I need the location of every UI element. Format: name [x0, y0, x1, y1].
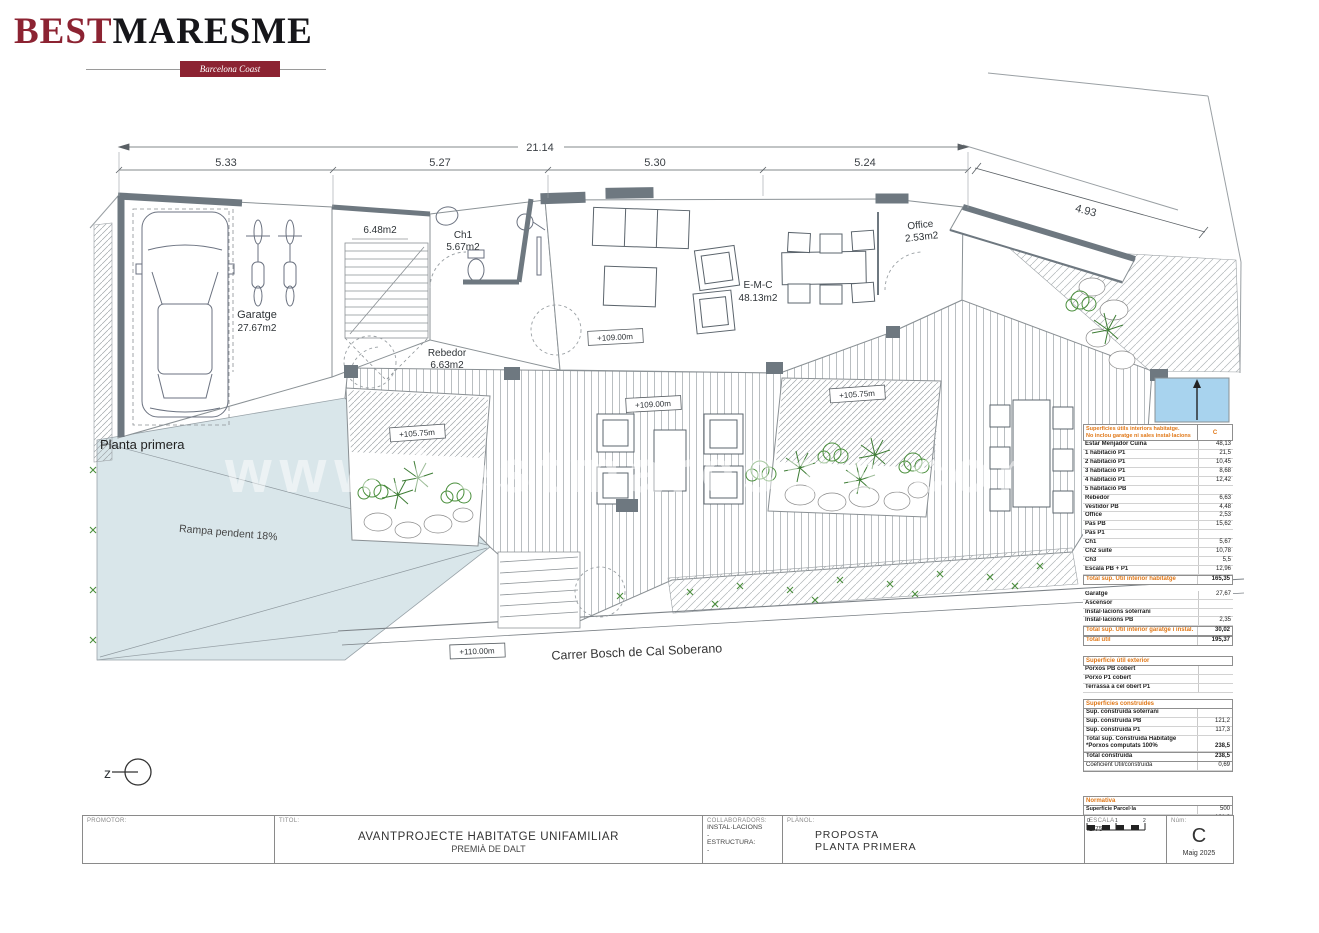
north-letter: z [104, 765, 111, 781]
row-label: Porxo P1 cobert [1083, 675, 1199, 683]
dim-label: 5.30 [644, 157, 665, 169]
dim-label: 5.27 [429, 157, 450, 169]
total-built-row: Total construida 238,5 [1084, 752, 1232, 762]
row-label: Total sup. Construida Habitatge [1086, 736, 1195, 744]
row-label: Pas P1 [1083, 530, 1199, 538]
row-value: 500 [1198, 806, 1232, 814]
row-value: 6,63 [1199, 495, 1233, 503]
exterior-rows: Porxos PB cobert Porxo P1 cobert Terrass… [1083, 666, 1233, 693]
titol-cell: TITOL: AVANTPROJECTE HABITATGE UNIFAMILI… [275, 816, 703, 863]
built-section: Sup. construida soterrani Sup. construid… [1083, 709, 1233, 772]
garage-label: Garatge [237, 309, 277, 321]
row-value: 2,35 [1199, 617, 1233, 625]
dim-label: 5.33 [215, 157, 236, 169]
exterior-section-header: Superficie útil exterior [1083, 656, 1233, 666]
coef-row: Coeficient Útil/construida 0,69 [1084, 762, 1232, 771]
row-label: Escala PB + P1 [1083, 566, 1199, 574]
garage-area: 27.67m2 [238, 323, 277, 334]
dim-total-label: 21.14 [526, 142, 554, 154]
row-value: 30,02 [1198, 627, 1232, 635]
table-row: Terrassa a cel obert P1 [1083, 684, 1233, 693]
row-label: Total construida [1084, 753, 1198, 761]
row-value: 238,5 [1198, 753, 1232, 761]
project-location: PREMIÀ DE DALT [279, 844, 698, 854]
collab-item: ESTRUCTURA: [707, 839, 778, 847]
row-value: 10,78 [1199, 548, 1233, 556]
num-cell: Núm: C Maig 2025 [1167, 816, 1231, 863]
row-label: Ascensor [1083, 600, 1199, 608]
table-row: Instal·lacions PB 2,35 [1083, 617, 1233, 626]
total-garage-row: Total sup. Útil interior garatge i insta… [1083, 626, 1233, 636]
row-label: 5 habitació PB [1083, 486, 1199, 494]
titol-label: TITOL: [279, 818, 698, 824]
project-title: AVANTPROJECTE HABITATGE UNIFAMILIAR [279, 831, 698, 843]
row-label: 3 habitació P1 [1083, 468, 1199, 476]
best-maresme-logo: BESTMARESME Barcelona Coast Properties [14, 12, 324, 82]
header-line2: No inclou garatge ni sales instal·lacion… [1086, 433, 1195, 440]
floor-title: Planta primera [100, 437, 185, 452]
ch1-area: 5.67m2 [446, 242, 480, 253]
row-value [1199, 486, 1233, 494]
level-deck: +109.00m [635, 399, 672, 410]
row-label: Total sup. Útil interior habitatge [1084, 576, 1198, 584]
row-label: Pas PB [1083, 521, 1199, 529]
normativa-section-header: Normativa [1083, 796, 1233, 806]
interior-rows: Estar Menjador Cuina 48,13 1 habitació P… [1083, 441, 1233, 575]
table-row: Pas P1 [1083, 530, 1233, 539]
row-label: 2 habitació P1 [1083, 459, 1199, 467]
row-label: Estar Menjador Cuina [1083, 441, 1199, 449]
row-label: Total sup. Útil interior garatge i insta… [1084, 627, 1198, 635]
garden-stairs [498, 552, 580, 628]
built-section-header: Superficies construides [1083, 699, 1233, 709]
emc-area: 48.13m2 [739, 293, 778, 304]
left-boundary-hatch [94, 223, 112, 462]
emc-label: E-M-C [744, 280, 773, 291]
row-label: Ch2 suite [1083, 548, 1199, 556]
row-label: Porxos PB cobert [1083, 666, 1199, 674]
built-rows: Sup. construida soterrani Sup. construid… [1084, 709, 1232, 736]
rebedor-area: 6.63m2 [430, 360, 464, 371]
row-label: Vestidor PB [1083, 504, 1199, 512]
table-row: 5 habitació PB [1083, 486, 1233, 495]
row-label: 4 habitació P1 [1083, 477, 1199, 485]
row-label: Sup. construida P1 [1084, 727, 1198, 735]
scale-bar: 0 1 2 [1085, 816, 1149, 834]
table-row: Office 2,53 [1083, 512, 1233, 521]
row-label: Total útil [1084, 637, 1198, 645]
row-value: 15,62 [1199, 521, 1233, 529]
table-row: 4 habitació P1 12,42 [1083, 477, 1233, 486]
sheet-date: Maig 2025 [1171, 850, 1227, 857]
table-row: Ch3 5,5 [1083, 557, 1233, 566]
row-value [1199, 600, 1233, 608]
title-block: PROMOTOR: TITOL: AVANTPROJECTE HABITATGE… [82, 815, 1234, 864]
table-row: Escala PB + P1 12,96 [1083, 566, 1233, 575]
row-label: Ch3 [1083, 557, 1199, 565]
row-label: Coeficient Útil/construida [1084, 762, 1198, 770]
row-label: Ch1 [1083, 539, 1199, 547]
row-label: Sup. construida soterrani [1084, 709, 1198, 717]
rebedor-label: Rebedor [428, 348, 467, 359]
dim-right-label: 4.93 [1074, 203, 1098, 220]
row-value: 8,68 [1199, 468, 1233, 476]
sheet-number: C [1171, 825, 1227, 848]
areas-summary-table: Superficies útils interiors habitatge. N… [1083, 424, 1233, 834]
table-row: Estar Menjador Cuina 48,13 [1083, 441, 1233, 450]
north-symbol: z [104, 759, 151, 785]
promotor-label: PROMOTOR: [87, 818, 270, 824]
garage-rows: Garatge 27,67 Ascensor Instal·lacions so… [1083, 591, 1233, 627]
dim-label: 5.24 [854, 157, 875, 169]
logo-tagline: Barcelona Coast Properties [180, 61, 280, 77]
total-useful-row: Total útil 195,37 [1083, 636, 1233, 646]
table-row: Ch1 5,67 [1083, 539, 1233, 548]
row-label: Instal·lacions PB [1083, 617, 1199, 625]
row-label: Instal·lacions soterrani [1083, 609, 1199, 617]
table-row: Sup. construida PB 121,2 [1084, 718, 1232, 727]
collab-item: INSTAL·LACIONS [707, 824, 778, 832]
planol-cell: PLÀNOL: PROPOSTA PLANTA PRIMERA [783, 816, 1085, 863]
planol-label: PLÀNOL: [787, 818, 1080, 824]
row-label: Terrassa a cel obert P1 [1083, 684, 1199, 692]
row-value: 12,42 [1199, 477, 1233, 485]
row-value: 165,35 [1198, 576, 1232, 584]
plan-sheet: 21.14 5.33 5.27 5.30 5.24 4.93 Garatge 2… [0, 0, 1319, 933]
collab-value: - [707, 847, 778, 855]
row-value: 2,53 [1199, 512, 1233, 520]
row-value: 121,2 [1198, 718, 1232, 726]
sheet-floor: PLANTA PRIMERA [815, 841, 1080, 853]
total-interior-row: Total sup. Útil interior habitatge 165,3… [1083, 575, 1233, 585]
built-total-row: Total sup. Construida Habitatge *Porxos … [1084, 736, 1232, 753]
row-label: Sup. construida PB [1084, 718, 1198, 726]
ch1-label: Ch1 [454, 230, 473, 241]
table-row: Superficie Parcel·la 500 [1084, 806, 1232, 815]
street-label: Carrer Bosch de Cal Soberano [551, 641, 722, 662]
table-row: 2 habitació P1 10,45 [1083, 459, 1233, 468]
row-value [1199, 666, 1233, 674]
escala-cell: ESCALA 1/75 0 1 2 [1085, 816, 1167, 863]
level-living: +109.00m [597, 332, 634, 343]
row-value [1199, 530, 1233, 538]
table-row: Porxos PB cobert [1083, 666, 1233, 675]
table-row: Porxo P1 cobert [1083, 675, 1233, 684]
row-label: Superficie Parcel·la [1084, 806, 1198, 814]
row-value [1199, 684, 1233, 692]
row-value: 117,3 [1198, 727, 1232, 735]
table-row: Pas PB 15,62 [1083, 521, 1233, 530]
row-value: 5,67 [1199, 539, 1233, 547]
table-row: Sup. construida P1 117,3 [1084, 727, 1232, 736]
header-col: C [1197, 425, 1232, 440]
table-row: Vestidor PB 4,48 [1083, 504, 1233, 513]
table-row: 3 habitació P1 8,68 [1083, 468, 1233, 477]
table-row: Rebedor 6,63 [1083, 495, 1233, 504]
row-value: 4,48 [1199, 504, 1233, 512]
areas-table-header: Superficies útils interiors habitatge. N… [1083, 424, 1233, 441]
row-value: 0,69 [1198, 762, 1232, 770]
logo-maresme: MARESME [113, 11, 313, 52]
num-label: Núm: [1171, 818, 1227, 824]
table-row: Ch2 suite 10,78 [1083, 548, 1233, 557]
row-value: 10,45 [1199, 459, 1233, 467]
stair-area-label: 6.48m2 [363, 225, 397, 236]
sheet-name: PROPOSTA [815, 829, 1080, 841]
row-label: Rebedor [1083, 495, 1199, 503]
row-label: Garatge [1083, 591, 1199, 599]
watermark: www.bestmaresme.com [224, 438, 1058, 505]
header-line1: Superficies útils interiors habitatge. [1086, 426, 1195, 433]
table-row: 1 habitació P1 21,5 [1083, 450, 1233, 459]
collaborators-cell: COLLABORADORS: INSTAL·LACIONS - ESTRUCTU… [703, 816, 783, 863]
row-value: 5,5 [1199, 557, 1233, 565]
row-label: *Porxos computats 100% [1086, 743, 1195, 751]
row-value [1199, 675, 1233, 683]
row-label: Office [1083, 512, 1199, 520]
row-value [1198, 709, 1232, 717]
promotor-cell: PROMOTOR: [83, 816, 275, 863]
collab-value: - [707, 832, 778, 840]
pool-box [1155, 378, 1229, 422]
row-value: 195,37 [1198, 637, 1232, 645]
table-row: Ascensor [1083, 600, 1233, 609]
row-value: 21,5 [1199, 450, 1233, 458]
table-row: Instal·lacions soterrani [1083, 609, 1233, 618]
level-street: +110.00m [459, 646, 495, 656]
row-value: 238,5 [1198, 736, 1232, 752]
row-value: 48,13 [1199, 441, 1233, 449]
row-value [1199, 609, 1233, 617]
row-value: 27,67 [1199, 591, 1233, 599]
table-row: Garatge 27,67 [1083, 591, 1233, 600]
row-value: 12,96 [1199, 566, 1233, 574]
logo-best: BEST [14, 11, 113, 52]
row-label: 1 habitació P1 [1083, 450, 1199, 458]
table-row: Sup. construida soterrani [1084, 709, 1232, 718]
